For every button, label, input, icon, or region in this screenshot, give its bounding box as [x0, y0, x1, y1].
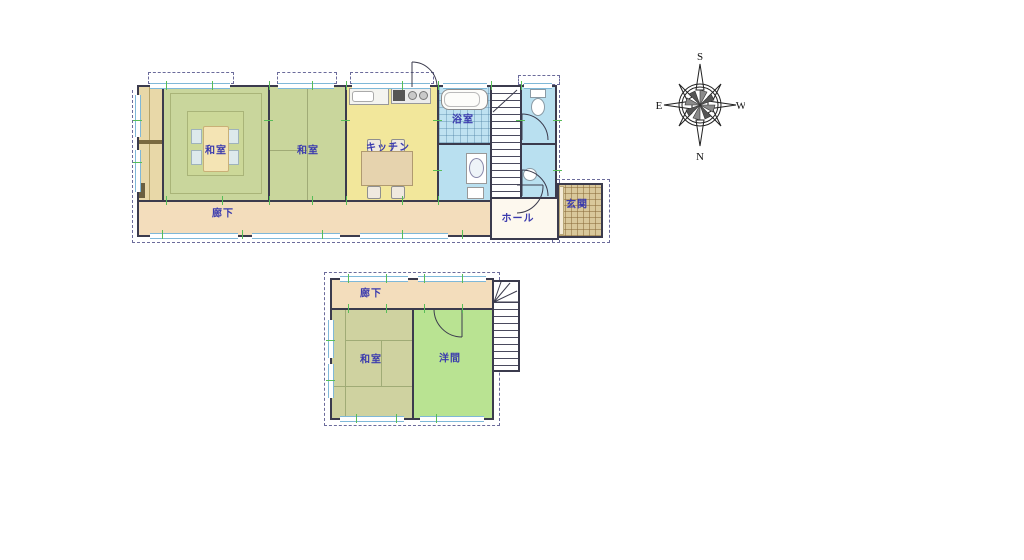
tick — [341, 120, 350, 121]
tick — [269, 81, 270, 90]
corner-basin — [523, 168, 537, 181]
bathtub-inner — [444, 92, 480, 107]
room-label: 和室 — [297, 142, 319, 157]
tick — [402, 196, 403, 205]
window — [418, 276, 486, 282]
room-label: 浴室 — [452, 111, 474, 126]
tick — [553, 120, 562, 121]
room-label: 洋間 — [439, 350, 461, 365]
burner — [419, 91, 428, 100]
tick — [269, 196, 270, 205]
tick — [312, 196, 313, 205]
zabuton-cushion — [191, 129, 202, 144]
window — [340, 416, 404, 422]
room-label: 玄関 — [566, 196, 588, 211]
room-corridor-1f — [137, 200, 492, 237]
window — [150, 83, 230, 89]
tick — [402, 230, 403, 239]
zabuton-cushion — [228, 129, 239, 144]
tick — [346, 81, 347, 90]
window — [352, 83, 430, 89]
window — [135, 95, 141, 137]
window — [328, 364, 334, 398]
zabuton-cushion — [228, 150, 239, 165]
toilet-tank — [530, 89, 546, 98]
room-label: 和室 — [205, 142, 227, 157]
tick — [433, 120, 442, 121]
tick — [396, 414, 397, 423]
tick — [438, 81, 439, 90]
sink-bowl — [352, 91, 374, 102]
zabuton-cushion — [191, 150, 202, 165]
tick — [553, 170, 562, 171]
compass-east-label: E — [656, 100, 663, 112]
chair — [367, 186, 381, 199]
stairs-winder — [494, 282, 518, 302]
compass-south-label: S — [697, 51, 703, 63]
stairs-1f — [490, 85, 522, 202]
tick — [348, 274, 349, 283]
tick — [521, 81, 522, 90]
floorplan-canvas: 和室 和室 キッチン 浴室 廊下 ホール 玄関 廊下 — [0, 0, 1024, 560]
compass-spike-up — [696, 64, 704, 90]
tick — [402, 81, 403, 90]
tick — [438, 196, 439, 205]
tick — [462, 230, 463, 239]
tatami-seam — [346, 340, 412, 341]
closet-shelf — [139, 140, 162, 144]
tick — [162, 230, 163, 239]
tatami-seam — [332, 386, 412, 387]
room-label: キッチン — [366, 139, 410, 154]
tick — [462, 304, 463, 313]
compass-rose: S N E W — [655, 50, 745, 162]
window — [328, 320, 334, 358]
window — [278, 83, 334, 89]
tick — [516, 120, 525, 121]
tick — [312, 81, 313, 90]
tick — [326, 380, 335, 381]
tick — [356, 414, 357, 423]
window — [340, 276, 408, 282]
room-corridor-2f — [330, 278, 494, 310]
toilet-bowl — [531, 98, 545, 116]
tick — [462, 274, 463, 283]
tick — [166, 196, 167, 205]
window — [150, 233, 238, 239]
tick — [133, 162, 142, 163]
room-label: ホール — [502, 210, 535, 225]
window — [443, 83, 487, 89]
tick — [491, 81, 492, 90]
tick — [166, 81, 167, 90]
compass-west-label: W — [736, 100, 745, 112]
compass-north-label: N — [696, 151, 704, 162]
tick — [322, 230, 323, 239]
burner — [408, 91, 417, 100]
wash-bowl — [469, 158, 484, 178]
tick — [346, 196, 347, 205]
tick — [386, 304, 387, 313]
window — [420, 416, 484, 422]
window — [524, 83, 552, 89]
room-label: 廊下 — [212, 205, 234, 220]
tick — [386, 274, 387, 283]
tick — [133, 120, 142, 121]
tick — [326, 340, 335, 341]
stove-panel — [393, 90, 405, 101]
tick — [212, 81, 213, 90]
window — [360, 233, 448, 239]
window — [135, 150, 141, 192]
room-label: 和室 — [360, 351, 382, 366]
tick — [424, 304, 425, 313]
room-label: 廊下 — [360, 285, 382, 300]
entrance-step — [559, 186, 564, 235]
tatami-seam — [345, 310, 346, 418]
dining-table — [361, 151, 413, 186]
tick — [433, 170, 442, 171]
washer-box — [467, 187, 484, 199]
compass-spike-down — [696, 120, 704, 146]
tick — [264, 120, 273, 121]
tick — [348, 304, 349, 313]
tick — [436, 414, 437, 423]
tick — [242, 230, 243, 239]
window — [252, 233, 340, 239]
tick — [424, 274, 425, 283]
